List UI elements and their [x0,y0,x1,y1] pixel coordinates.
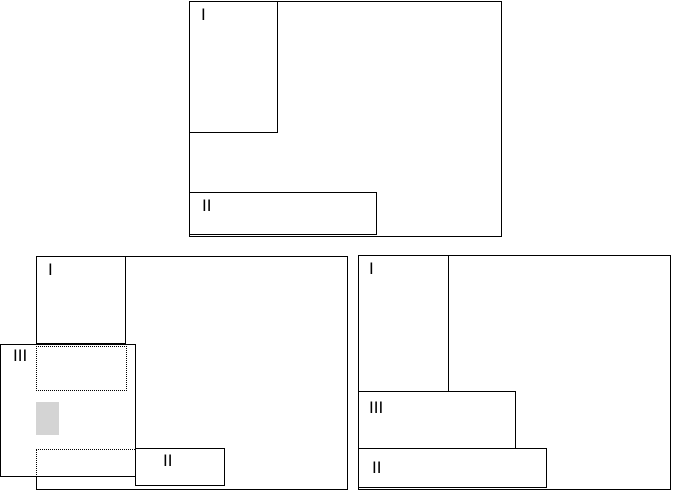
window-iii-label-bottom-left: III [13,346,27,366]
window-i-label-bottom-left: I [48,260,53,280]
window-ii-label-top: II [202,196,211,216]
window-i-label-top: I [201,5,206,25]
window-ii-label-bottom-left: II [163,451,172,471]
window-i-label-bottom-right: I [369,259,374,279]
dotted-overlap-region-lower [36,449,135,477]
window-ii-bottom-right [358,448,547,488]
window-ii-label-bottom-right: II [372,458,381,478]
window-iii-label-bottom-right: III [369,398,383,418]
figure-canvas: I II I III II I III II [0,0,674,493]
window-ii-top [189,192,377,235]
window-ii-bottom-left [135,448,225,486]
dotted-overlap-region-upper [36,346,127,391]
gray-region [36,402,59,435]
